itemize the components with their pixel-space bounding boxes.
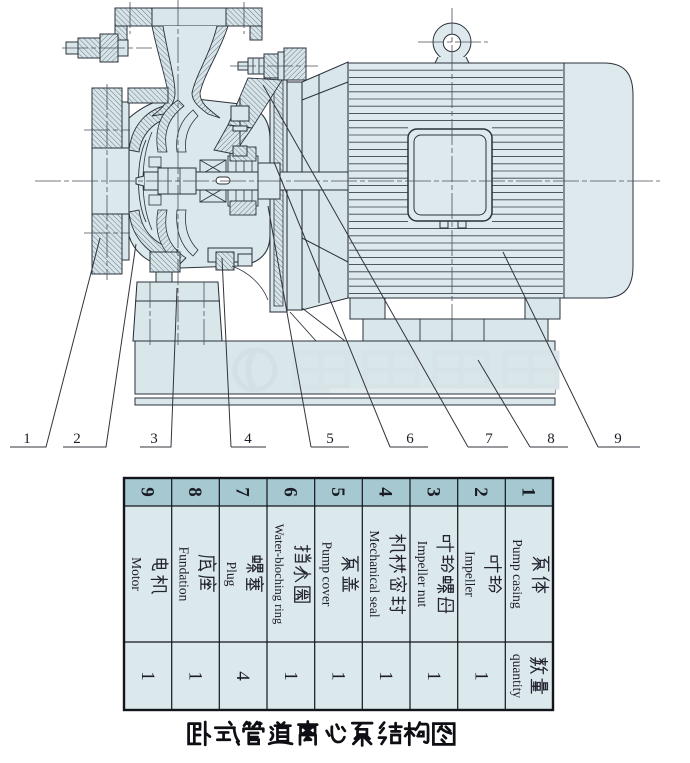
- svg-text:9: 9: [136, 487, 157, 497]
- svg-text:1: 1: [375, 671, 396, 681]
- svg-text:4: 4: [232, 671, 253, 681]
- svg-text:7: 7: [485, 431, 493, 447]
- svg-text:6: 6: [406, 431, 414, 447]
- svg-text:8: 8: [547, 431, 555, 447]
- svg-text:1: 1: [471, 671, 492, 681]
- svg-text:1: 1: [280, 671, 301, 681]
- svg-text:Water-bloching ring: Water-bloching ring: [272, 524, 286, 625]
- svg-text:Impeller: Impeller: [463, 551, 478, 597]
- svg-text:3: 3: [150, 431, 158, 447]
- svg-text:4: 4: [244, 431, 252, 447]
- svg-text:9: 9: [614, 431, 622, 447]
- svg-text:5: 5: [326, 431, 334, 447]
- svg-text:Plug: Plug: [224, 562, 239, 587]
- svg-text:1: 1: [185, 671, 206, 681]
- svg-text:Pump cover: Pump cover: [320, 542, 335, 607]
- svg-text:Impeller nut: Impeller nut: [415, 541, 430, 608]
- svg-text:1: 1: [423, 671, 444, 681]
- svg-text:4: 4: [375, 487, 396, 497]
- svg-text:Mechanical seal: Mechanical seal: [367, 530, 382, 618]
- svg-text:1: 1: [137, 671, 158, 681]
- svg-text:Fundation: Fundation: [177, 547, 192, 602]
- svg-text:2: 2: [470, 487, 491, 497]
- svg-text:6: 6: [279, 487, 300, 497]
- svg-text:1: 1: [23, 431, 31, 447]
- svg-text:2: 2: [73, 431, 81, 447]
- svg-text:1: 1: [328, 671, 349, 681]
- svg-text:quantity: quantity: [510, 654, 525, 698]
- svg-text:7: 7: [232, 487, 253, 497]
- svg-text:3: 3: [422, 487, 443, 497]
- svg-text:Motor: Motor: [129, 557, 144, 591]
- svg-text:5: 5: [327, 487, 348, 497]
- svg-text:1: 1: [518, 487, 539, 497]
- svg-text:Pump casing: Pump casing: [510, 539, 525, 609]
- svg-text:8: 8: [184, 487, 205, 497]
